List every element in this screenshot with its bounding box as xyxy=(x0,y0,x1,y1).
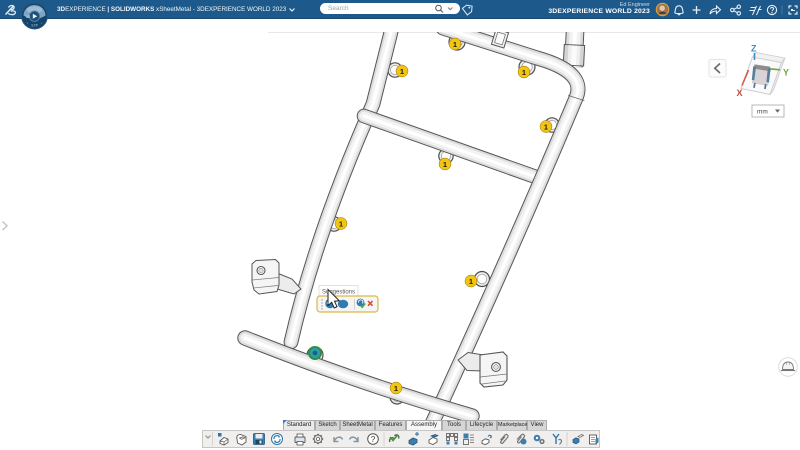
svg-text:1: 1 xyxy=(453,40,457,49)
svg-text:1: 1 xyxy=(443,160,447,169)
svg-text:1: 1 xyxy=(400,67,404,76)
svg-text:1: 1 xyxy=(522,68,526,77)
svg-text:1: 1 xyxy=(394,384,398,393)
svg-text:1: 1 xyxy=(339,219,343,228)
svg-text:Y: Y xyxy=(783,68,789,78)
svg-text:mm: mm xyxy=(757,109,768,116)
svg-text:X: X xyxy=(737,88,743,98)
svg-text:1: 1 xyxy=(544,122,548,131)
svg-text:?: ? xyxy=(371,434,376,444)
svg-text:Z: Z xyxy=(751,44,757,54)
svg-text:1: 1 xyxy=(469,277,473,286)
svg-text:Suggestions: Suggestions xyxy=(322,290,355,296)
